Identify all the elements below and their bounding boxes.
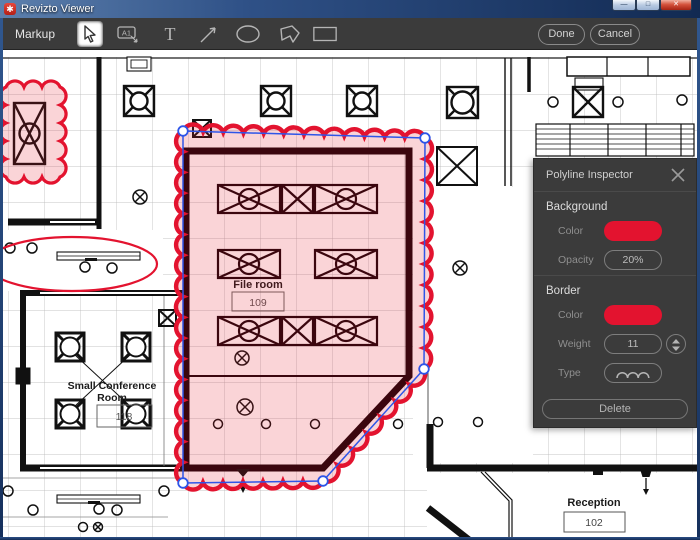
conference-number: 118 bbox=[116, 411, 133, 423]
close-button[interactable]: ✕ bbox=[660, 0, 692, 11]
cloud-line-style-icon bbox=[616, 368, 650, 380]
border-weight-value[interactable]: 11 bbox=[604, 334, 662, 354]
app-logo-icon: ✱ bbox=[4, 3, 16, 15]
border-type-label: Type bbox=[558, 367, 581, 379]
svg-text:T: T bbox=[165, 24, 176, 44]
panel-title: Polyline Inspector bbox=[546, 169, 633, 181]
text-tool-button[interactable]: T bbox=[157, 21, 183, 47]
polyline-tool-button[interactable] bbox=[277, 21, 303, 47]
border-color-label: Color bbox=[558, 309, 583, 321]
markup-mode-label: Markup bbox=[15, 27, 55, 41]
vertex-handle bbox=[318, 476, 328, 486]
callout-a1-icon: A1 bbox=[116, 23, 140, 45]
background-opacity-value[interactable]: 20% bbox=[604, 250, 662, 270]
ellipse-tool-button[interactable] bbox=[235, 21, 261, 47]
vertex-handle bbox=[178, 478, 188, 488]
reception-number: 102 bbox=[585, 517, 603, 529]
vertex-handle bbox=[420, 133, 430, 143]
conference-label-line1: Small Conference bbox=[68, 380, 157, 392]
ellipse-icon bbox=[235, 24, 261, 44]
window-border-left bbox=[0, 18, 3, 540]
minimize-button[interactable]: — bbox=[612, 0, 636, 11]
panel-close-icon[interactable] bbox=[670, 167, 686, 183]
stepper-arrows-icon bbox=[671, 339, 681, 351]
border-weight-label: Weight bbox=[558, 338, 591, 350]
done-button[interactable]: Done bbox=[538, 24, 585, 45]
reception-label: Reception bbox=[567, 497, 620, 509]
callout-tool-button[interactable]: A1 bbox=[115, 21, 141, 47]
rectangle-icon bbox=[312, 24, 338, 44]
delete-button[interactable]: Delete bbox=[542, 399, 688, 419]
text-icon: T bbox=[159, 23, 181, 45]
cancel-button[interactable]: Cancel bbox=[590, 24, 640, 45]
border-type-selector[interactable] bbox=[604, 363, 662, 383]
vertex-handle bbox=[419, 364, 429, 374]
window-title: Revizto Viewer bbox=[21, 3, 94, 15]
border-section-header: Border bbox=[534, 276, 696, 301]
background-section-header: Background bbox=[534, 192, 696, 217]
cloud-markup-small-fill bbox=[3, 81, 66, 183]
titlebar[interactable]: ✱ Revizto Viewer — □ ✕ bbox=[0, 0, 700, 18]
polygon-icon bbox=[278, 23, 302, 45]
markup-toolbar: Markup A1 T bbox=[3, 18, 697, 50]
background-color-swatch[interactable] bbox=[604, 221, 662, 241]
vertex-handle bbox=[178, 126, 188, 136]
maximize-button[interactable]: □ bbox=[636, 0, 660, 11]
conference-label-line2: Room bbox=[97, 392, 127, 404]
select-tool-button[interactable] bbox=[77, 21, 103, 47]
weight-stepper[interactable] bbox=[666, 334, 686, 354]
svg-text:A1: A1 bbox=[122, 29, 131, 38]
arrow-icon bbox=[198, 23, 220, 45]
cursor-icon bbox=[80, 24, 100, 44]
background-color-label: Color bbox=[558, 225, 583, 237]
background-opacity-label: Opacity bbox=[558, 254, 594, 266]
border-color-swatch[interactable] bbox=[604, 305, 662, 325]
arrow-tool-button[interactable] bbox=[196, 21, 222, 47]
app-window: ✱ Revizto Viewer — □ ✕ Markup A1 T bbox=[0, 0, 700, 540]
rectangle-tool-button[interactable] bbox=[312, 21, 338, 47]
polyline-inspector-panel: Polyline Inspector Background Color Opac… bbox=[533, 158, 697, 428]
